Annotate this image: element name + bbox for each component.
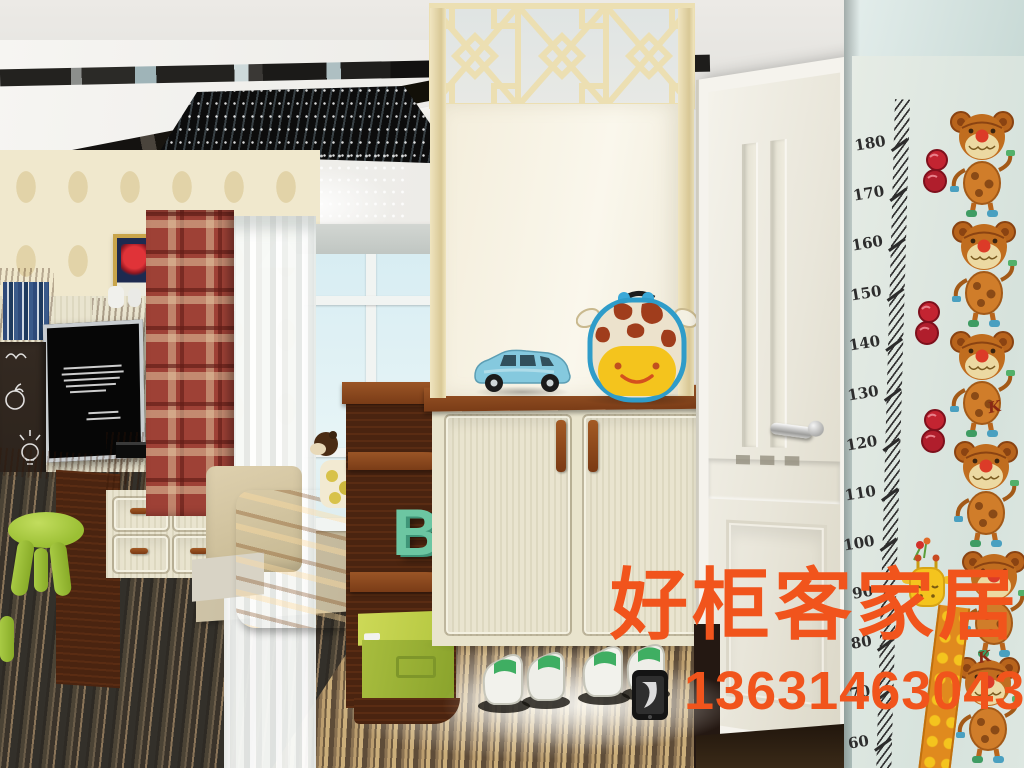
height-label: 140 [845, 332, 881, 355]
ruler-tick [874, 737, 892, 751]
height-mark-130: 130 [844, 384, 909, 406]
height-mark-150: 150 [847, 284, 912, 306]
ruler-tick [884, 388, 902, 402]
door-groove [770, 139, 787, 448]
ruler-tick [882, 438, 900, 452]
height-label: 150 [846, 282, 882, 305]
cabinet-handle [556, 420, 566, 472]
height-mark-140: 140 [846, 334, 911, 356]
lattice-screen [428, 2, 696, 110]
giraffe-backpack [576, 284, 698, 404]
cabinet-door-left [444, 414, 572, 636]
height-label: 130 [844, 382, 880, 405]
bear-sticker [942, 104, 1022, 219]
roller-shade [296, 224, 450, 254]
height-mark-60: 60 [835, 734, 900, 756]
height-label: 180 [851, 132, 887, 155]
red-bow-sticker [918, 408, 952, 454]
watermark-brand: 好柜客家居 [610, 566, 1020, 644]
door-groove [742, 142, 758, 447]
height-label: 100 [839, 532, 875, 555]
height-mark-110: 110 [842, 484, 907, 506]
bear-sticker [944, 214, 1024, 329]
red-bow-sticker [920, 148, 954, 194]
ruler-tick [888, 238, 906, 252]
door-handle-rose [808, 421, 824, 437]
cabinet-handle [588, 420, 598, 472]
height-label: 120 [842, 432, 878, 455]
stool-leg-partial [0, 616, 14, 662]
height-mark-160: 160 [849, 234, 914, 256]
interior-render: B [0, 0, 1024, 768]
ruler-tick [881, 488, 899, 502]
height-label: 160 [848, 232, 884, 255]
sneakers-pair [474, 634, 574, 722]
door-notch [760, 455, 774, 465]
door-rail [709, 458, 841, 504]
ruler-tick [885, 338, 903, 352]
bear-sticker [942, 324, 1022, 439]
white-vase [108, 286, 124, 308]
toy-car [470, 344, 574, 396]
bear-sticker [946, 434, 1024, 549]
door-notch [785, 456, 800, 466]
stool-leg [34, 548, 48, 592]
height-label: 60 [834, 732, 870, 755]
ruler-tick [891, 138, 909, 152]
ruler-tick [887, 288, 905, 302]
ruler-tick [889, 188, 907, 202]
door-notch [736, 455, 750, 465]
height-label: 170 [849, 182, 885, 205]
red-bow-sticker [912, 300, 946, 346]
drawer-handle [130, 548, 148, 554]
height-mark-120: 120 [843, 434, 908, 456]
white-vase [128, 288, 141, 307]
height-mark-100: 100 [840, 534, 905, 556]
smartphone-icon [630, 668, 670, 722]
watermark-phone: 13631463043 [684, 664, 1024, 718]
screen-post-left [430, 8, 446, 398]
box-handle [396, 656, 436, 678]
ruler-tick [880, 538, 898, 552]
height-label: 110 [841, 482, 877, 505]
drawer [112, 534, 170, 574]
window-mullion [304, 296, 442, 305]
height-mark-170: 170 [850, 184, 915, 206]
height-mark-180: 180 [851, 134, 916, 156]
